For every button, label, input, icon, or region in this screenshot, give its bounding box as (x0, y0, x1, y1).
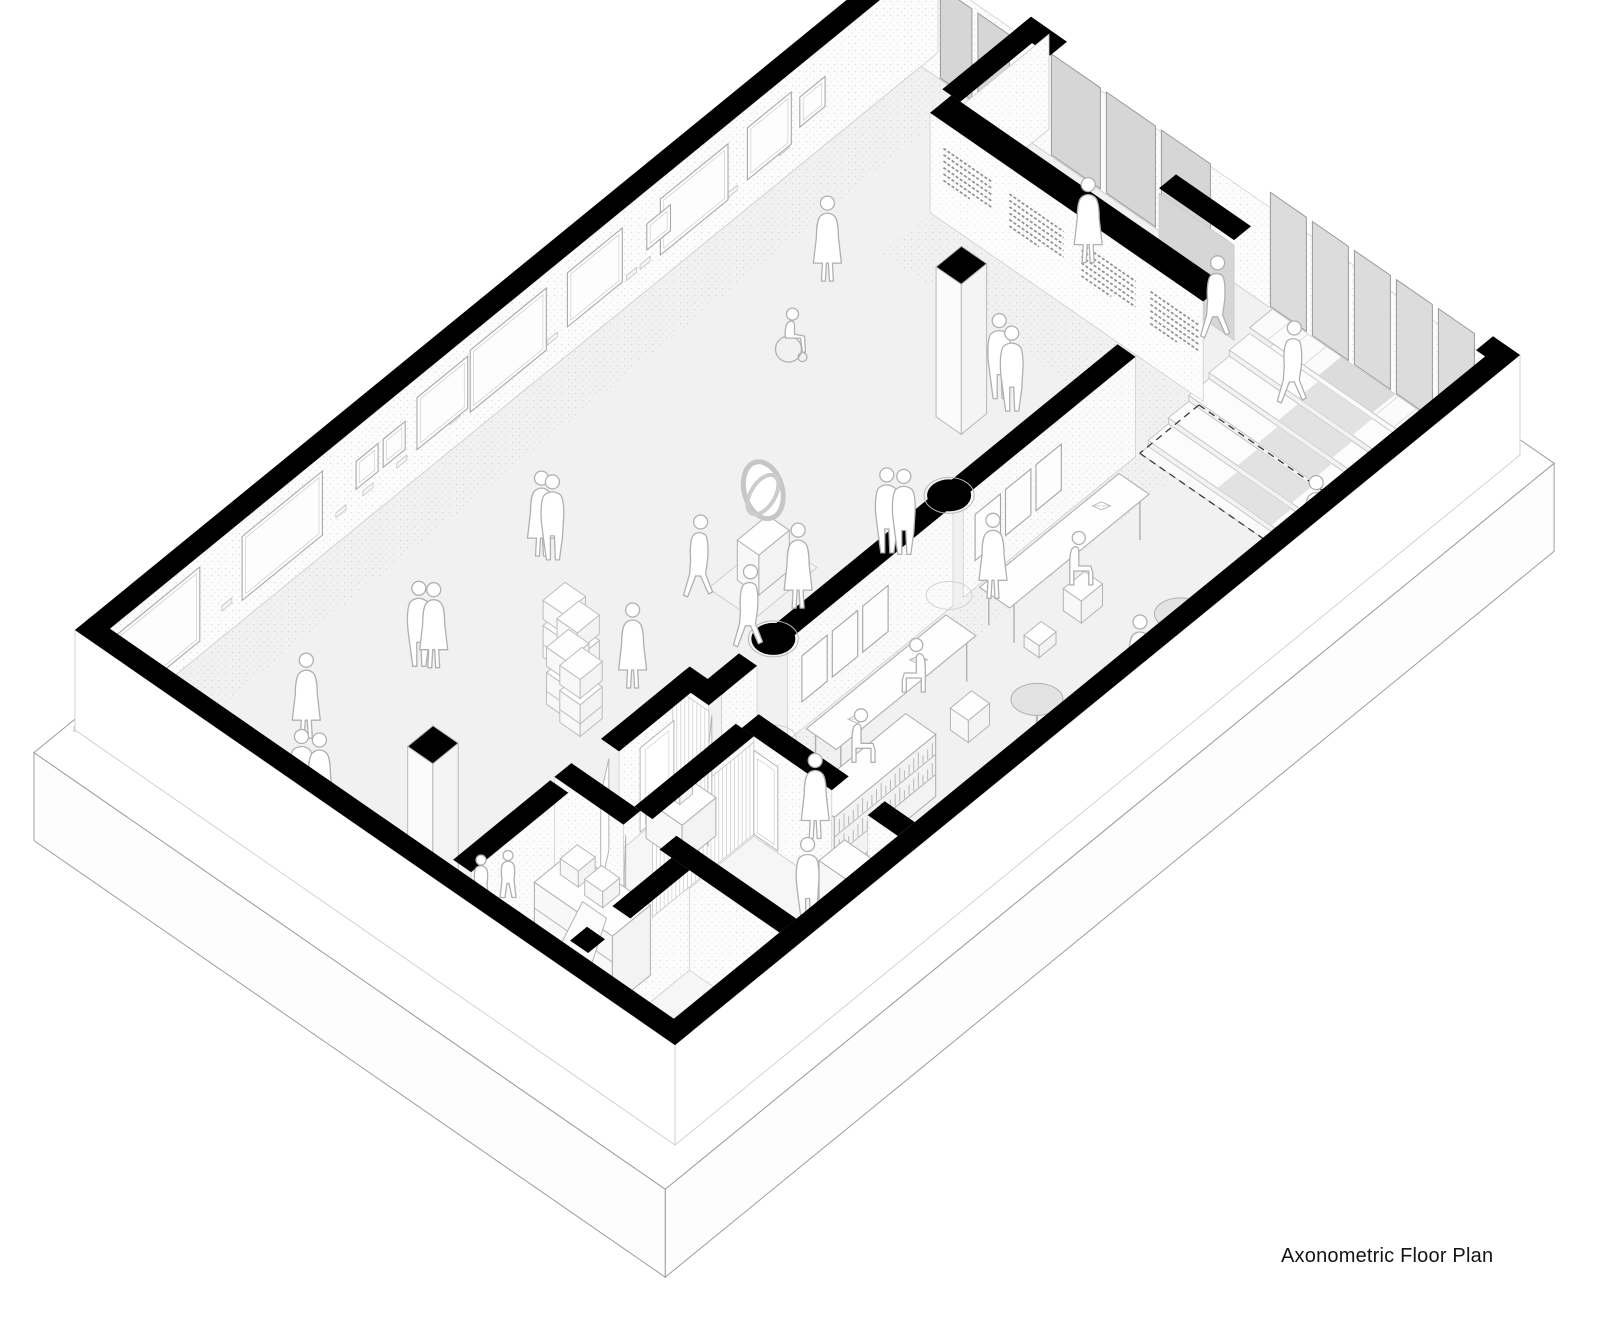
glazing-panel (1396, 280, 1432, 419)
canvas: Axonometric Floor Plan (0, 0, 1600, 1328)
stacked-block-sculpture (560, 647, 602, 736)
glazing-panel (1270, 192, 1306, 331)
display-pedestal (936, 246, 987, 434)
glazing-panel (1354, 251, 1390, 390)
drawing-title-label: Axonometric Floor Plan (1281, 1245, 1493, 1268)
glazing-panel (1312, 222, 1348, 361)
round-column (927, 479, 971, 511)
axonometric-floor-plan-drawing (0, 0, 1600, 1328)
drawing-root (34, 0, 1554, 1277)
